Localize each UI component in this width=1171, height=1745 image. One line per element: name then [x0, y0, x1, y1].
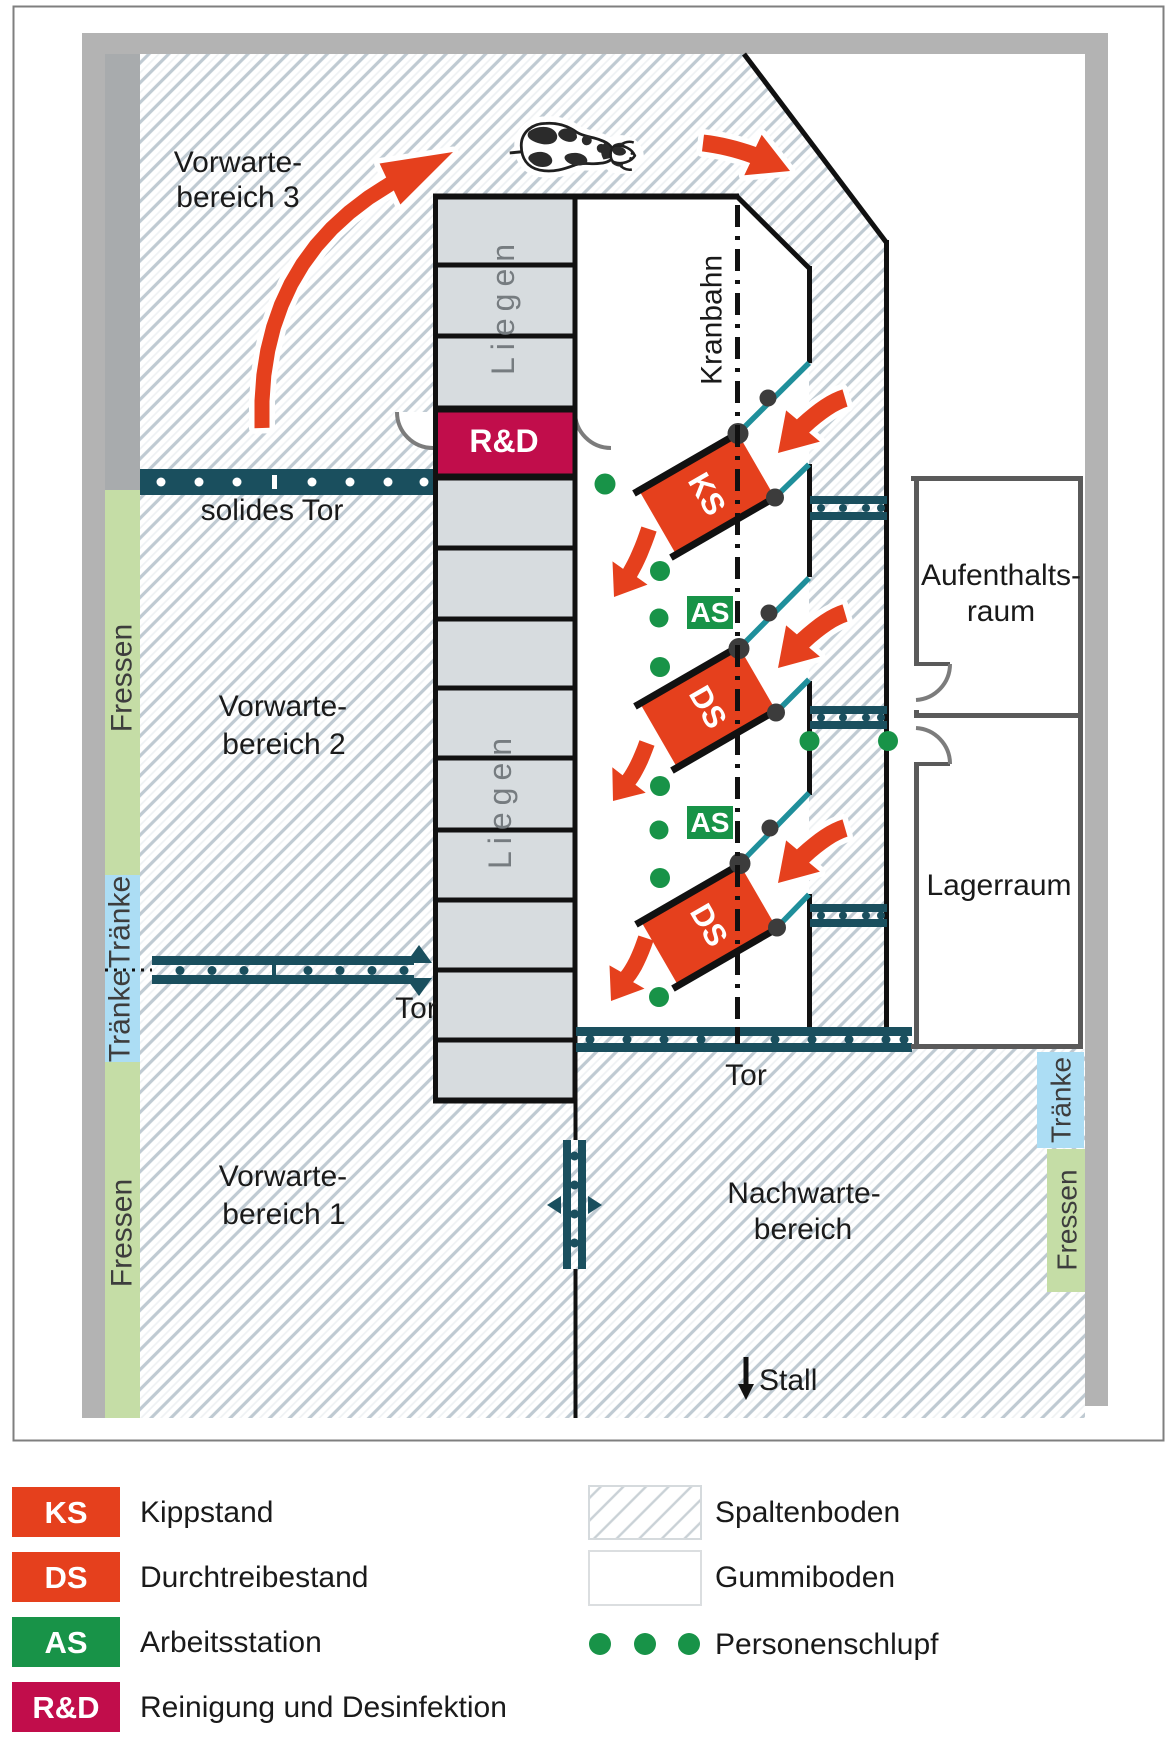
svg-text:Fressen: Fressen	[106, 1179, 139, 1287]
svg-text:Arbeitsstation: Arbeitsstation	[140, 1626, 322, 1659]
svg-text:Stall: Stall	[759, 1364, 817, 1397]
svg-text:bereich 3: bereich 3	[176, 181, 299, 214]
svg-text:AS: AS	[691, 807, 730, 838]
svg-text:Kippstand: Kippstand	[140, 1496, 273, 1529]
svg-text:Gummiboden: Gummiboden	[715, 1561, 895, 1594]
svg-text:Reinigung und Desinfektion: Reinigung und Desinfektion	[140, 1691, 507, 1724]
svg-text:raum: raum	[967, 595, 1035, 628]
svg-text:Tränke: Tränke	[1046, 1057, 1077, 1143]
svg-text:Vorwarte-: Vorwarte-	[174, 146, 302, 179]
svg-text:Aufenthalts-: Aufenthalts-	[921, 559, 1081, 592]
svg-text:Spaltenboden: Spaltenboden	[715, 1496, 900, 1529]
svg-text:bereich 2: bereich 2	[222, 728, 345, 761]
svg-text:R&D: R&D	[32, 1690, 99, 1725]
svg-text:Tränke: Tränke	[104, 970, 137, 1062]
svg-text:AS: AS	[691, 597, 730, 628]
svg-text:Personenschlupf: Personenschlupf	[715, 1628, 939, 1661]
svg-text:solides Tor: solides Tor	[201, 494, 344, 527]
svg-text:KS: KS	[44, 1495, 87, 1530]
svg-text:Nachwarte-: Nachwarte-	[727, 1177, 880, 1210]
svg-text:Liegen: Liegen	[485, 237, 521, 375]
svg-text:Vorwarte-: Vorwarte-	[219, 1160, 347, 1193]
svg-text:Fressen: Fressen	[106, 624, 139, 732]
svg-text:Kranbahn: Kranbahn	[696, 255, 729, 385]
svg-text:bereich: bereich	[754, 1213, 852, 1246]
svg-text:Liegen: Liegen	[482, 731, 518, 869]
svg-text:AS: AS	[44, 1625, 87, 1660]
svg-text:Durchtreibestand: Durchtreibestand	[140, 1561, 368, 1594]
svg-text:DS: DS	[44, 1560, 87, 1595]
svg-text:Lagerraum: Lagerraum	[926, 869, 1071, 902]
svg-text:Tor: Tor	[395, 992, 437, 1025]
svg-text:bereich 1: bereich 1	[222, 1198, 345, 1231]
svg-text:Tor: Tor	[725, 1059, 767, 1092]
svg-text:R&D: R&D	[469, 423, 538, 459]
svg-text:Tränke: Tränke	[104, 876, 137, 968]
svg-text:Vorwarte-: Vorwarte-	[219, 690, 347, 723]
svg-text:Fressen: Fressen	[1052, 1169, 1083, 1270]
